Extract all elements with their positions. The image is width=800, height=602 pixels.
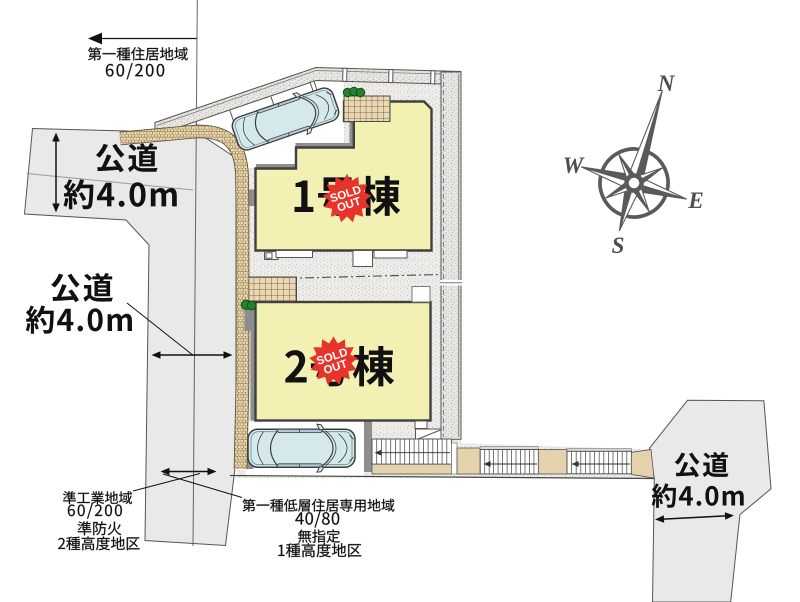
svg-text:E: E [687,188,703,213]
svg-text:W: W [563,153,585,178]
svg-text:N: N [657,71,676,96]
svg-text:S: S [612,233,625,258]
